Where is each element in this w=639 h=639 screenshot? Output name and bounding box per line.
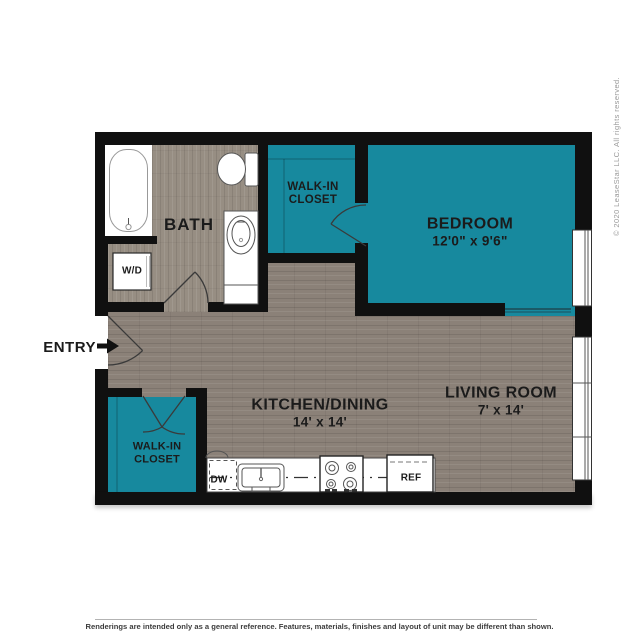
room-label-bath: BATH	[164, 215, 214, 235]
disclaimer-text: Renderings are intended only as a genera…	[0, 622, 639, 631]
fixtures-layer	[0, 0, 639, 639]
entry-door-icon	[108, 316, 143, 365]
footer-divider	[95, 619, 537, 620]
kitchen-sink-icon	[238, 464, 284, 492]
room-label-living-room: LIVING ROOM 7' x 14'	[445, 385, 557, 418]
bedroom-window-icon	[573, 230, 592, 306]
copyright-text: © 2020 LeaseStar LLC. All rights reserve…	[612, 77, 621, 236]
entry-arrow-icon	[97, 339, 119, 354]
fixture-label-refrigerator: REF	[401, 473, 422, 484]
fixture-label-washer-dryer: W/D	[122, 266, 142, 277]
room-label-bedroom: BEDROOM 12'0" x 9'6"	[427, 216, 513, 249]
room-label-walk-in-closet-top: WALK-IN CLOSET	[287, 181, 338, 207]
toilet-icon	[218, 153, 259, 186]
floorplan-canvas: BATH WALK-IN CLOSET BEDROOM 12'0" x 9'6"…	[0, 0, 639, 639]
entry-label: ENTRY	[18, 339, 96, 356]
bedroom-opening-lines	[505, 309, 571, 312]
bathtub-icon	[105, 145, 152, 236]
living-room-dimensions: 7' x 14'	[445, 403, 557, 418]
living-room-window-icon	[573, 337, 592, 480]
room-label-walk-in-closet-bottom: WALK-IN CLOSET	[133, 441, 181, 466]
bath-sink-icon	[224, 211, 258, 304]
fixture-label-dishwasher: DW	[210, 475, 227, 486]
closet-bottom-doors-icon	[143, 396, 185, 434]
stove-icon	[320, 456, 363, 492]
room-label-kitchen-dining: KITCHEN/DINING 14' x 14'	[251, 397, 388, 430]
bedroom-dimensions: 12'0" x 9'6"	[427, 234, 513, 249]
bath-door-icon	[164, 272, 208, 303]
closet-top-door-icon	[331, 205, 366, 246]
kitchen-dimensions: 14' x 14'	[251, 415, 388, 430]
